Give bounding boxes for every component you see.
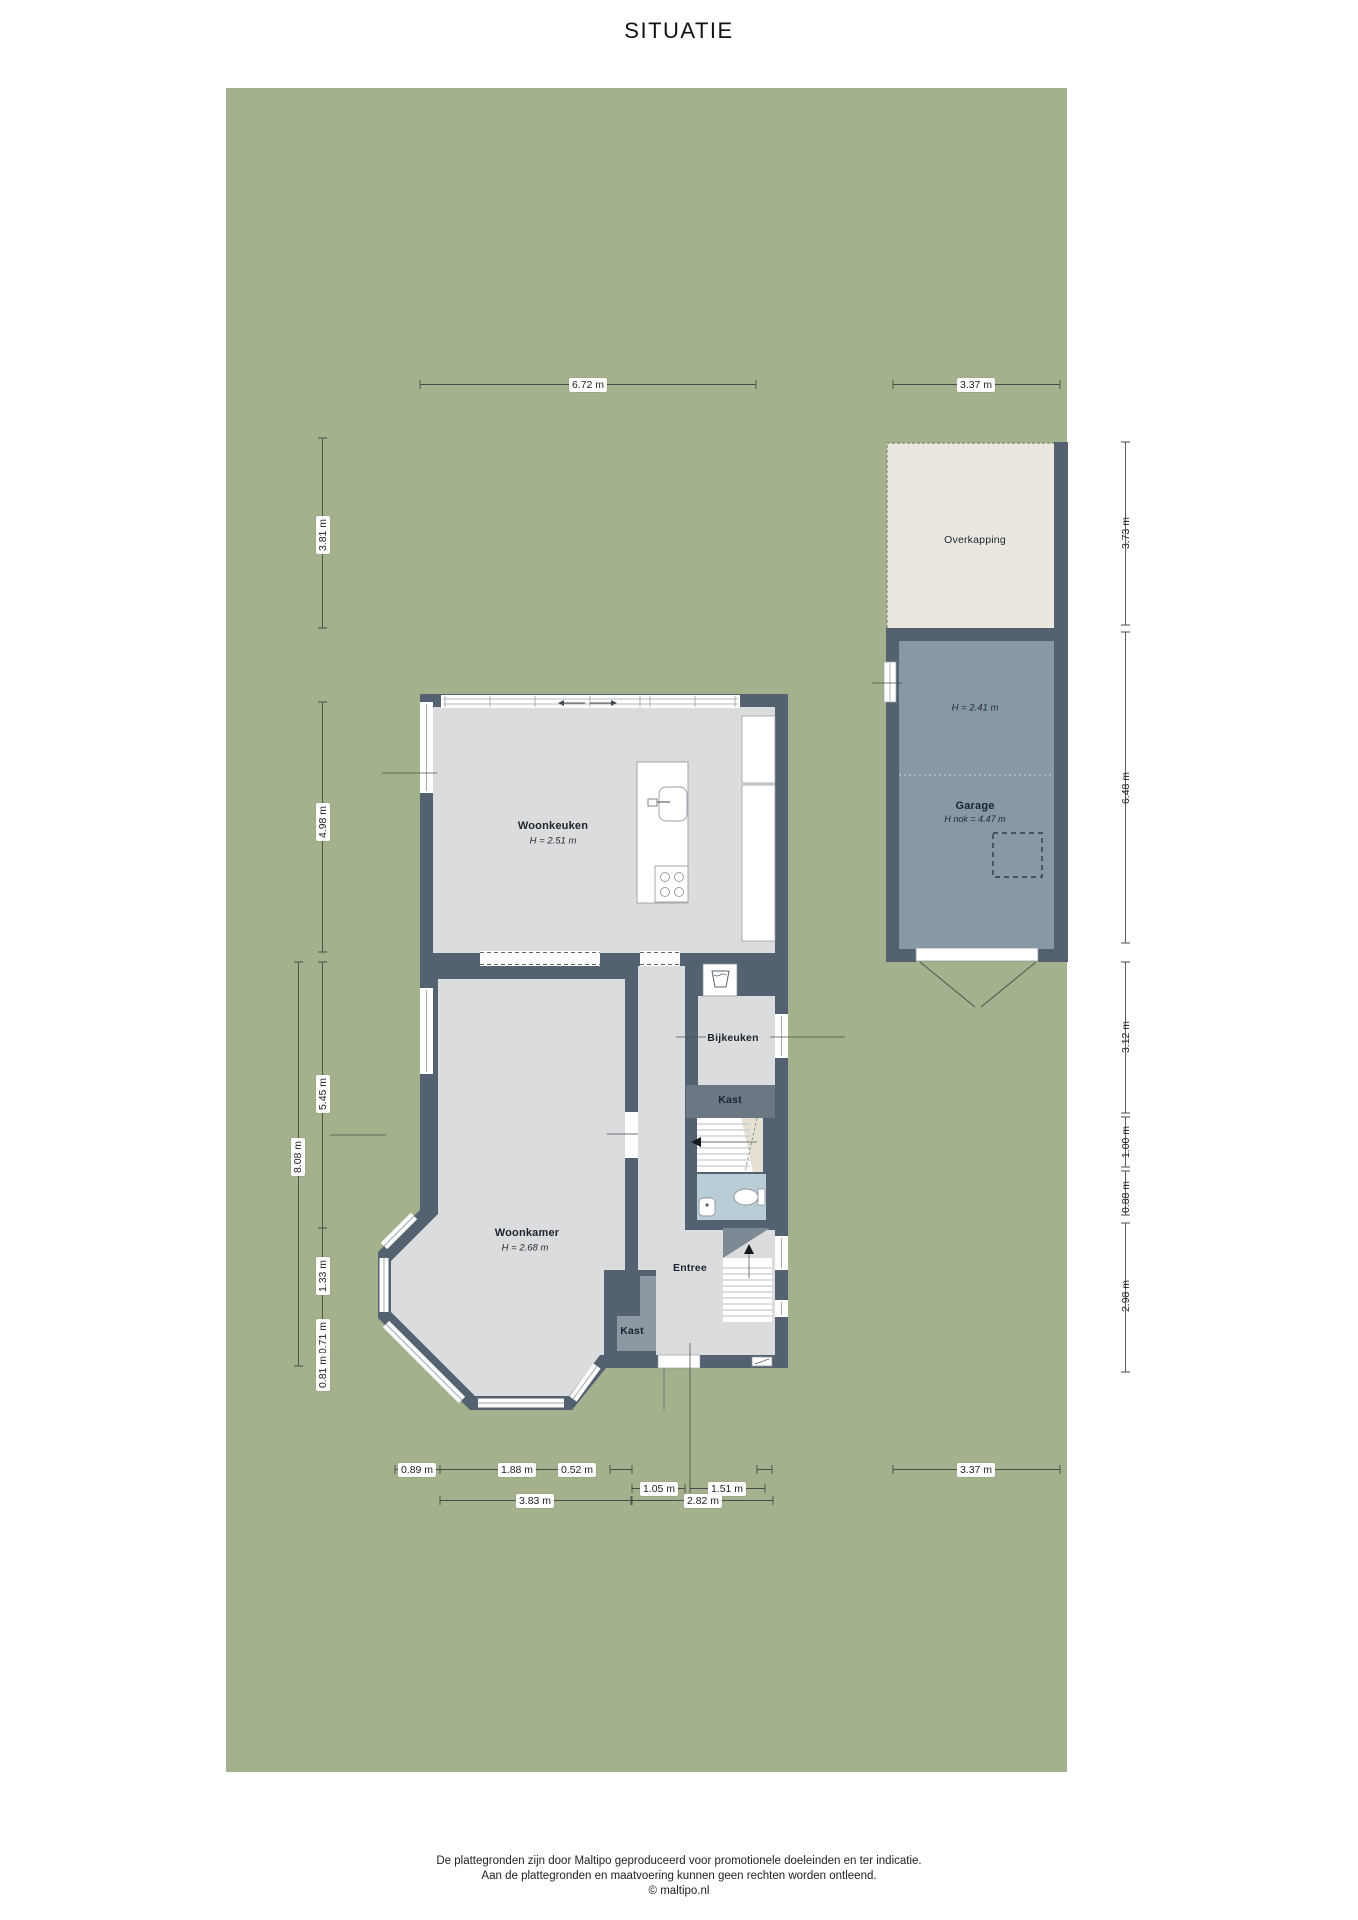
entree-label: Entree <box>673 1262 707 1274</box>
garage-label: Garage <box>955 800 994 812</box>
kast-hal-label: Kast <box>718 1094 742 1106</box>
situatie-floorplan-page: SITUATIE <box>0 0 1358 1920</box>
dim-top-1: 6.72 m <box>569 378 607 392</box>
dim-left-4: 8.08 m <box>291 1138 305 1176</box>
dim-bottom-6: 3.83 m <box>516 1494 554 1508</box>
dim-bottom-3: 0.52 m <box>558 1463 596 1477</box>
woonkeuken-left-window <box>420 702 433 793</box>
dim-bottom-4: 1.05 m <box>640 1482 678 1496</box>
dim-left-5: 1.33 m <box>316 1257 330 1295</box>
dim-left-7: 0.81 m <box>316 1353 330 1391</box>
dim-right-4: 1.00 m <box>1119 1123 1133 1161</box>
woonkeuken-label: Woonkeuken <box>518 820 588 832</box>
garage-ridge-label: H nok = 4.47 m <box>944 814 1005 824</box>
footer-disclaimer: De plattegronden zijn door Maltipo gepro… <box>0 1854 1358 1899</box>
kitchen-cabinets <box>742 716 775 941</box>
entree-right-window-a <box>775 1236 788 1270</box>
dim-bottom-7: 2.82 m <box>684 1494 722 1508</box>
footer-line-1: De plattegronden zijn door Maltipo gepro… <box>0 1854 1358 1869</box>
bijkeuken-right-window <box>775 1014 788 1058</box>
dim-right-3: 3.12 m <box>1119 1018 1133 1056</box>
woonkeuken-top-window <box>441 695 740 708</box>
footer-line-3: © maltipo.nl <box>0 1884 1358 1899</box>
toilet <box>734 1189 765 1205</box>
garage-height-label: H = 2.41 m <box>952 703 999 714</box>
dim-left-2: 4.98 m <box>316 803 330 841</box>
woonkeuken-floor <box>433 707 775 953</box>
footer-line-2: Aan de plattegronden en maatvoering kunn… <box>0 1869 1358 1884</box>
dim-right-2: 6.48 m <box>1119 769 1133 807</box>
woonkamer-height-label: H = 2.68 m <box>502 1243 549 1254</box>
dim-right-1: 3.73 m <box>1119 514 1133 552</box>
washbasin <box>699 1198 715 1216</box>
dim-bottom-8: 3.37 m <box>957 1463 995 1477</box>
kast-woonkamer-label: Kast <box>620 1325 644 1337</box>
garage-window <box>884 662 896 702</box>
woonkeuken-height-label: H = 2.51 m <box>530 836 577 847</box>
dim-left-6: 0.71 m <box>316 1319 330 1357</box>
woonkamer-left-window <box>420 988 433 1074</box>
room-floors <box>391 707 775 1396</box>
washing-machine <box>703 964 737 996</box>
bijkeuken-label: Bijkeuken <box>707 1032 758 1044</box>
overkapping-label: Overkapping <box>944 534 1006 546</box>
dim-left-1: 3.81 m <box>316 516 330 554</box>
dim-right-5: 0.88 m <box>1119 1178 1133 1216</box>
dim-top-2: 3.37 m <box>957 378 995 392</box>
dim-left-3: 5.45 m <box>316 1075 330 1113</box>
dim-bottom-2: 1.88 m <box>498 1463 536 1477</box>
kitchen-island <box>637 762 688 903</box>
stove <box>655 866 688 902</box>
dim-bottom-1: 0.89 m <box>398 1463 436 1477</box>
woonkamer-label: Woonkamer <box>495 1227 560 1239</box>
dim-right-6: 2.98 m <box>1119 1277 1133 1315</box>
floorplan-drawing <box>0 0 1358 1920</box>
entree-right-window-b <box>775 1300 788 1317</box>
threshold-step <box>752 1357 772 1366</box>
